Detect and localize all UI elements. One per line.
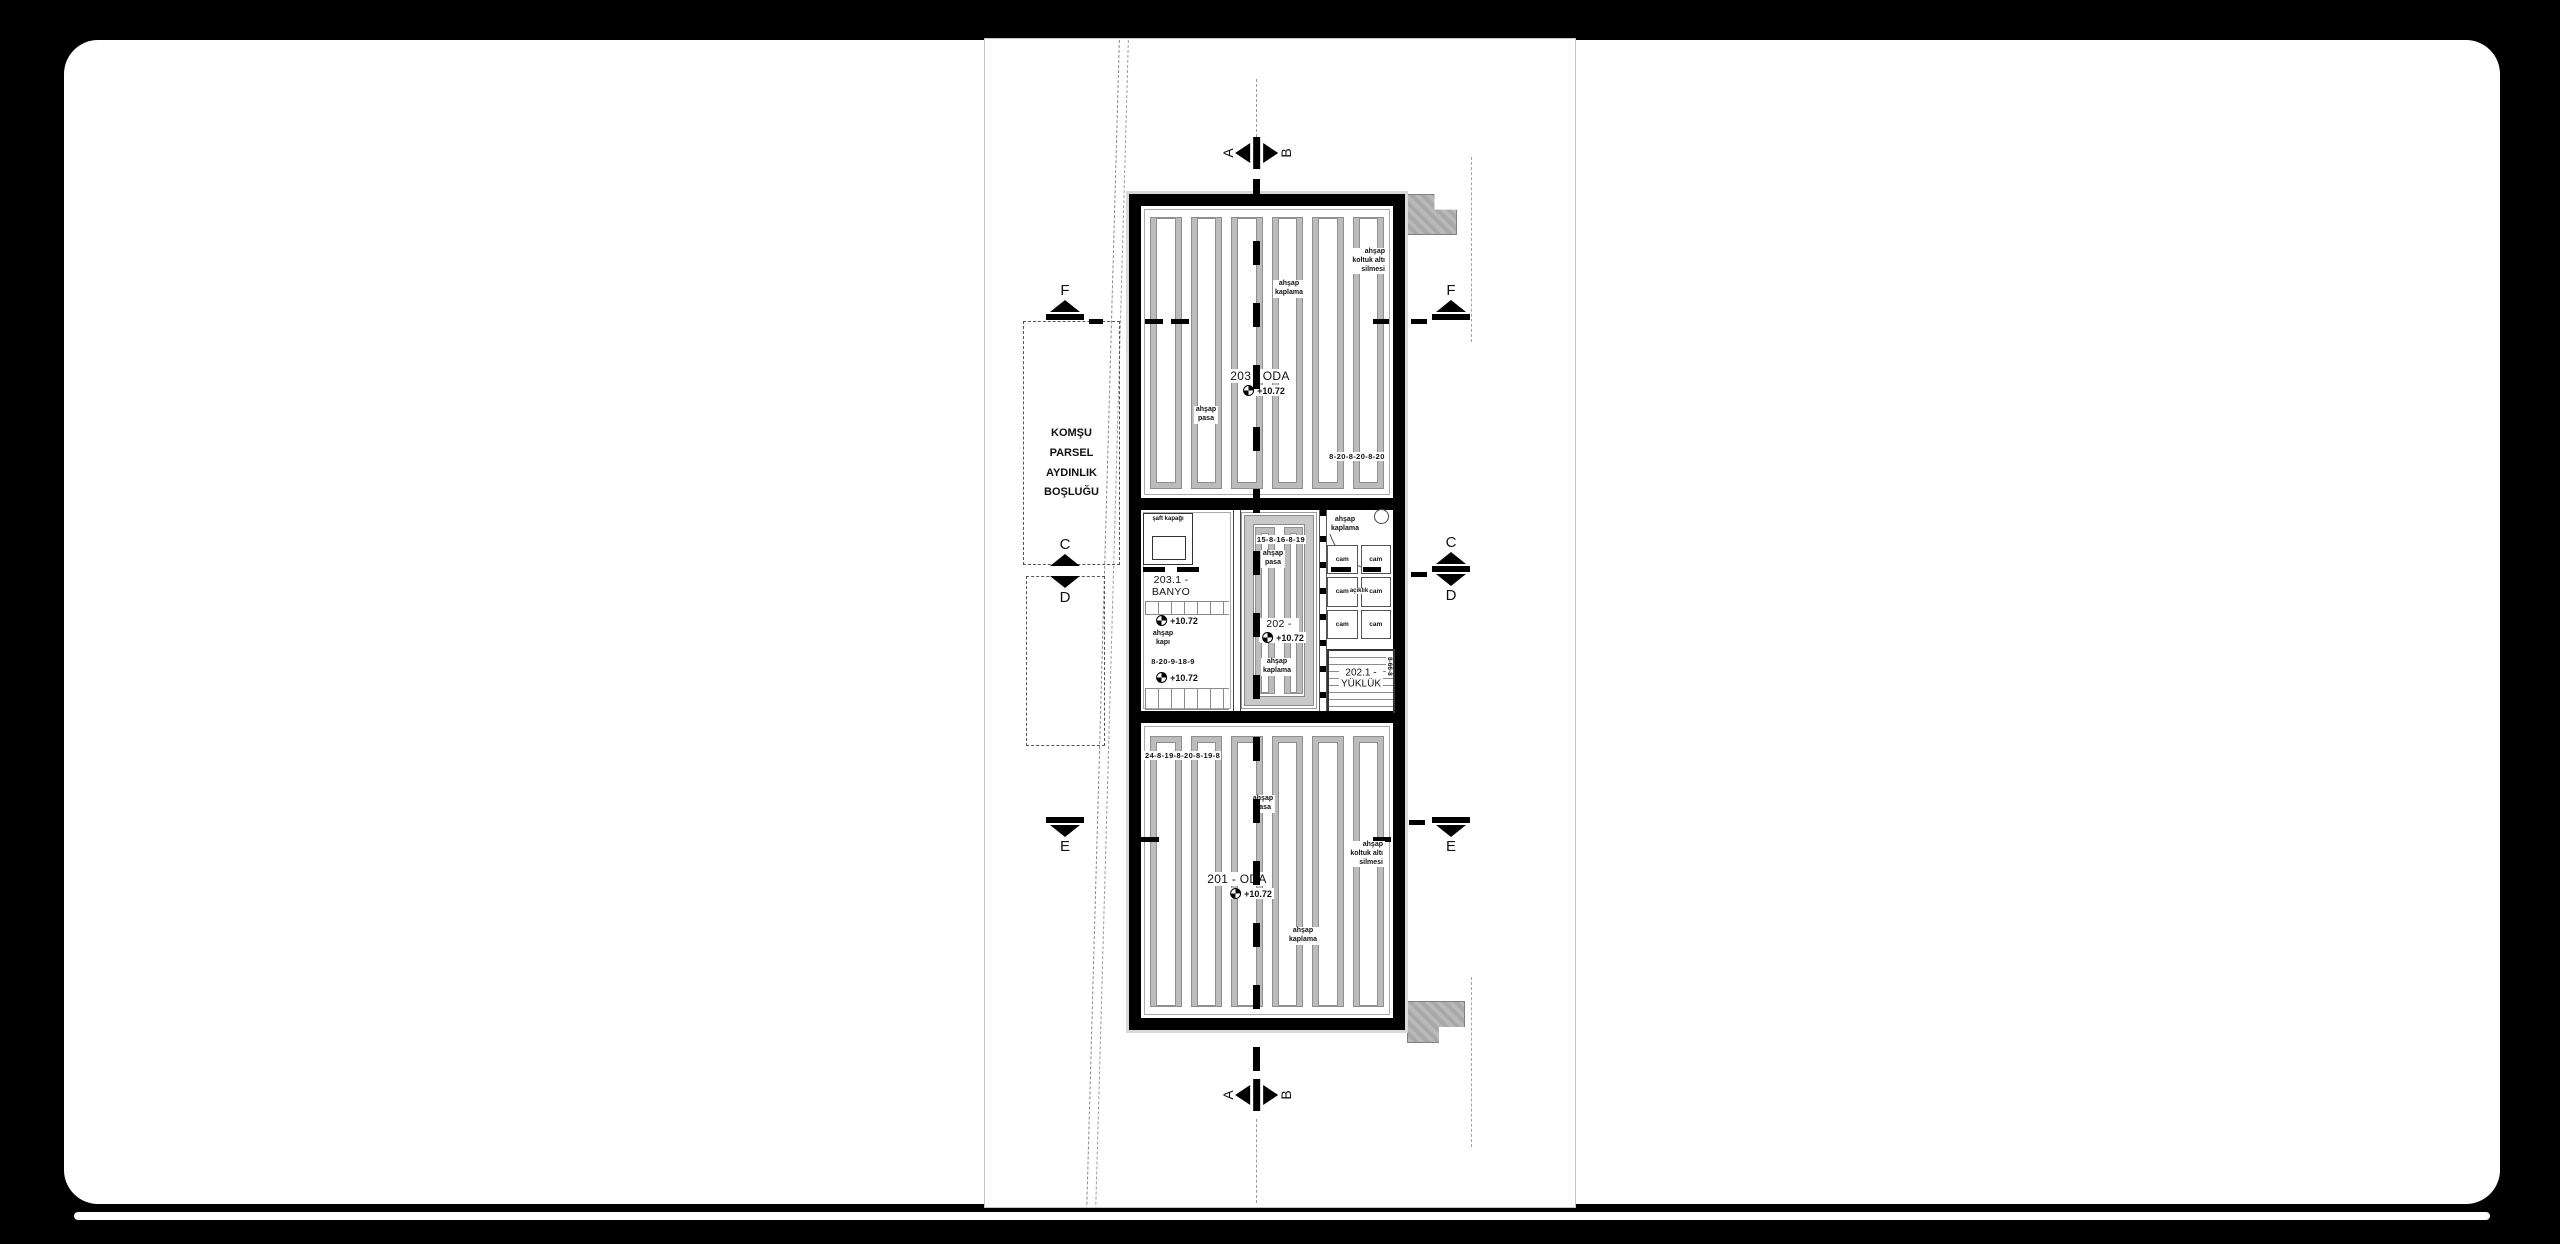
section-axis-line [1256, 1119, 1257, 1203]
dimension-chain: 8-20-9-18-9 [1150, 657, 1196, 666]
elevation-symbol-icon [1230, 888, 1241, 899]
section-marker-ab-top: A B [1223, 137, 1291, 169]
floor-strip-loop [1151, 737, 1181, 1006]
section-line-dash [1145, 319, 1163, 324]
shaft-cover-box: şaft kapağı [1143, 513, 1193, 565]
section-line-dash [1411, 319, 1427, 324]
room-203-elevation: +10.72 [1241, 385, 1287, 396]
middle-band: şaft kapağı 203.1 - BANYO +10.72 ahşap k… [1141, 510, 1393, 711]
section-marker-cd-right: C D [1432, 535, 1470, 603]
section-marker-f-left: F [1046, 283, 1084, 320]
section-marker-e-right: E [1432, 817, 1470, 854]
elevation-symbol-icon [1156, 615, 1167, 626]
section-arrow-down-icon [1436, 574, 1466, 586]
annotation-kaplama: ahşap kaplama [1273, 280, 1305, 298]
section-marker-cd-left: C D [1050, 537, 1080, 605]
annotation-aciklik: açıklık [1349, 588, 1369, 594]
entry-area: ahşap kaplama cam cam cam cam cam cam aç… [1325, 510, 1393, 711]
cabinet-cell: cam [1361, 610, 1392, 639]
section-arrow-right-icon [1264, 1085, 1279, 1105]
room-sofa-elevation: +10.72 [1260, 632, 1306, 643]
annotation-pasa: ahşap pasa [1194, 406, 1218, 424]
section-line-dash [1089, 319, 1103, 324]
section-line-dash [1141, 837, 1159, 842]
door-hinge-icon [1374, 509, 1389, 524]
cabinet-cell: cam [1327, 610, 1358, 639]
section-arrow-left-icon [1236, 1085, 1251, 1105]
section-bar-icon [1432, 817, 1470, 823]
section-marker-e-left: E [1046, 817, 1084, 854]
room-yukluk-name: 202.1 - YÜKLÜK [1339, 667, 1383, 690]
annotation-kapi: ahşap kapı [1151, 630, 1175, 648]
room-203-name: 203 - ODA [1228, 369, 1291, 383]
elevation-symbol-icon [1262, 632, 1273, 643]
annotation-pasa: ahşap pasa [1261, 550, 1285, 568]
section-bar-icon [1046, 314, 1084, 320]
room-banyo-elevation: +10.72 [1154, 615, 1200, 626]
floor-strip-loop [1313, 737, 1343, 1006]
tile-band [1145, 601, 1229, 615]
room-yukluk: 202.1 - YÜKLÜK 8-66-8 [1327, 649, 1395, 713]
lightwell-note: KOMŞU PARSEL AYDINLIK BOŞLUĞU [1028, 424, 1115, 503]
shaft-cover-label: şaft kapağı [1152, 516, 1183, 522]
section-letter-f: F [1060, 283, 1069, 298]
dimension-chain: 8-20-8-20-8-20 [1328, 452, 1386, 461]
section-line-dash [1411, 572, 1427, 577]
lightwell-note-line1: KOMŞU PARSEL [1028, 424, 1115, 464]
lightwell-outline: KOMŞU PARSEL AYDINLIK BOŞLUĞU [1023, 321, 1120, 565]
vertical-dimension: 8-66-8 [1386, 657, 1393, 676]
elevation-symbol-icon [1156, 672, 1167, 683]
section-line-dash [1373, 319, 1389, 324]
room-sofa: 15-8-16-8-19 ahşap pasa 202 - SOFA +10.7… [1239, 510, 1319, 711]
section-arrow-right-icon [1264, 143, 1279, 163]
floor-strip-loop [1354, 737, 1384, 1006]
section-bar-icon [1254, 1079, 1261, 1111]
ledge-hatch-bottom [1407, 1001, 1465, 1043]
section-arrow-down-icon [1050, 825, 1080, 837]
section-letter-f: F [1446, 283, 1455, 298]
section-line-ab [1253, 179, 1260, 1075]
room-203-oda: ahşap koltuk altı silmesi ahşap kaplama … [1141, 206, 1393, 498]
ledge-hatch-top [1407, 194, 1457, 235]
dimension-chain: 15-8-16-8-19 [1256, 535, 1306, 544]
elevation-value: +10.72 [1276, 633, 1304, 643]
section-letter-c: C [1060, 537, 1071, 552]
section-letter-a: A [1220, 1090, 1236, 1099]
floor-strip-loop [1192, 218, 1222, 488]
lightwell-note-line2: AYDINLIK BOŞLUĞU [1028, 464, 1115, 504]
section-letter-b: B [1278, 148, 1294, 157]
floor-plan: ahşap koltuk altı silmesi ahşap kaplama … [1129, 194, 1405, 1030]
room-201-elevation: +10.72 [1228, 888, 1274, 899]
reference-dash-line [1471, 157, 1472, 342]
section-letter-c: C [1446, 535, 1457, 550]
floor-pattern [1151, 218, 1383, 488]
reference-dash-line [1471, 977, 1472, 1147]
section-arrow-up-icon [1436, 552, 1466, 564]
section-axis-line [1256, 79, 1257, 137]
section-letter-d: D [1060, 590, 1071, 605]
dimension-chain: 24-8-19-8-20-8-19-8 [1144, 751, 1221, 760]
section-line-dash [1331, 567, 1351, 572]
section-letter-a: A [1220, 148, 1236, 157]
section-arrow-up-icon [1050, 300, 1080, 312]
room-201-oda: 24-8-19-8-20-8-19-8 ahşap pasa ahşap kol… [1141, 723, 1393, 1018]
section-line-dash [1171, 319, 1189, 324]
section-line-dash [1363, 567, 1381, 572]
room-banyo: şaft kapağı 203.1 - BANYO +10.72 ahşap k… [1141, 510, 1233, 711]
viewer-bottom-strip [74, 1212, 2490, 1220]
floor-strip-loop [1273, 218, 1303, 488]
floor-strip-loop [1313, 218, 1343, 488]
section-marker-f-right: F [1432, 283, 1470, 320]
section-letter-b: B [1278, 1090, 1294, 1099]
floor-strip-loop [1273, 737, 1303, 1006]
section-line-dash [1143, 567, 1165, 572]
floor-strip-loop [1151, 218, 1181, 488]
tile-band [1145, 688, 1229, 710]
section-letter-e: E [1446, 839, 1456, 854]
section-arrow-up-icon [1050, 554, 1080, 566]
elevation-value: +10.72 [1170, 673, 1198, 683]
annotation-koltuk-silmesi: ahşap koltuk altı silmesi [1348, 841, 1385, 867]
room-banyo-elevation-2: +10.72 [1154, 672, 1200, 683]
room-banyo-name: 203.1 - BANYO [1150, 574, 1192, 598]
annotation-kaplama: ahşap kaplama [1329, 516, 1361, 534]
section-line-dash [1177, 567, 1199, 572]
section-bar-icon [1432, 566, 1470, 572]
shaft-inner-box [1152, 536, 1186, 560]
annotation-koltuk-silmesi: ahşap koltuk altı silmesi [1350, 248, 1387, 274]
interior-wall [1141, 498, 1393, 510]
section-marker-ab-bottom: A B [1223, 1079, 1291, 1111]
elevation-value: +10.72 [1170, 616, 1198, 626]
section-line-dash [1409, 820, 1425, 825]
drawing-sheet[interactable]: KOMŞU PARSEL AYDINLIK BOŞLUĞU A B A B F [984, 38, 1576, 1208]
section-bar-icon [1046, 817, 1084, 823]
section-arrow-up-icon [1436, 300, 1466, 312]
elevation-value: +10.72 [1257, 386, 1285, 396]
section-letter-e: E [1060, 839, 1070, 854]
annotation-kaplama: ahşap kaplama [1287, 927, 1319, 945]
section-arrow-down-icon [1050, 576, 1080, 588]
section-bar-icon [1432, 314, 1470, 320]
viewer-panel: KOMŞU PARSEL AYDINLIK BOŞLUĞU A B A B F [64, 40, 2500, 1204]
section-bar-icon [1254, 137, 1261, 169]
section-arrow-down-icon [1436, 825, 1466, 837]
section-letter-d: D [1446, 588, 1457, 603]
interior-wall [1141, 711, 1393, 723]
annotation-kaplama: ahşap kaplama [1261, 658, 1293, 676]
section-arrow-left-icon [1236, 143, 1251, 163]
